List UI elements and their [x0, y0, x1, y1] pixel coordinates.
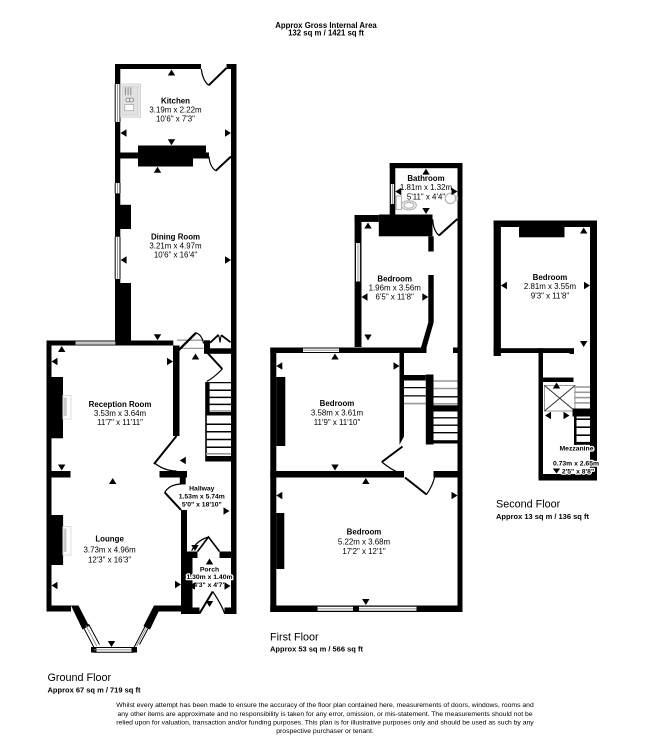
svg-text:relied upon for valuation, tra: relied upon for valuation, transaction a… — [116, 719, 534, 726]
svg-text:10'6" x 16'4": 10'6" x 16'4" — [154, 251, 197, 260]
svg-text:Second Floor: Second Floor — [496, 499, 561, 511]
svg-text:3.73m x 4.96m: 3.73m x 4.96m — [83, 546, 136, 555]
svg-text:Whilst every attempt has been: Whilst every attempt has been made to en… — [116, 702, 534, 709]
svg-text:17'2" x 12'1": 17'2" x 12'1" — [342, 547, 385, 556]
svg-text:Dining Room: Dining Room — [151, 232, 200, 241]
svg-text:4'3" x 4'7": 4'3" x 4'7" — [193, 582, 225, 589]
svg-text:Reception Room: Reception Room — [89, 400, 152, 409]
svg-text:10'6" x 7'3": 10'6" x 7'3" — [156, 115, 195, 124]
svg-text:1.30m x 1.40m: 1.30m x 1.40m — [186, 574, 232, 581]
svg-text:2.81m x 3.55m: 2.81m x 3.55m — [524, 282, 577, 291]
svg-text:Bedroom: Bedroom — [347, 527, 382, 536]
svg-text:1.96m x 3.56m: 1.96m x 3.56m — [369, 284, 422, 293]
svg-text:9'3" x 11'8": 9'3" x 11'8" — [531, 291, 569, 300]
svg-text:Bedroom: Bedroom — [377, 274, 412, 283]
svg-text:Porch: Porch — [200, 567, 219, 574]
svg-text:Approx 67 sq m / 719 sq ft: Approx 67 sq m / 719 sq ft — [48, 685, 141, 694]
svg-text:5'0" x 18'10": 5'0" x 18'10" — [182, 501, 222, 508]
svg-text:3.21m x 4.97m: 3.21m x 4.97m — [149, 241, 202, 250]
svg-text:12'3" x 16'3": 12'3" x 16'3" — [88, 556, 131, 565]
svg-text:Bedroom: Bedroom — [320, 399, 355, 408]
svg-text:1.81m x 1.32m: 1.81m x 1.32m — [400, 183, 453, 192]
svg-text:3.19m x 2.22m: 3.19m x 2.22m — [149, 106, 202, 115]
svg-text:5'11" x 4'4": 5'11" x 4'4" — [407, 192, 445, 201]
svg-text:Lounge: Lounge — [95, 534, 124, 543]
svg-text:132 sq m / 1421 sq ft: 132 sq m / 1421 sq ft — [288, 29, 364, 38]
svg-text:Approx 13 sq m / 136 sq ft: Approx 13 sq m / 136 sq ft — [496, 512, 589, 521]
svg-text:1.53m x 5.74m: 1.53m x 5.74m — [179, 493, 225, 500]
svg-text:Mezzanine: Mezzanine — [560, 446, 594, 453]
svg-text:6'5" x 11'8": 6'5" x 11'8" — [376, 293, 414, 302]
svg-text:5.22m x 3.68m: 5.22m x 3.68m — [338, 537, 391, 546]
svg-text:Kitchen: Kitchen — [161, 96, 190, 105]
svg-text:3.58m x 3.61m: 3.58m x 3.61m — [311, 409, 364, 418]
svg-text:Bathroom: Bathroom — [407, 174, 444, 183]
svg-text:3.53m x 3.64m: 3.53m x 3.64m — [94, 409, 147, 418]
svg-text:11'7" x 11'11": 11'7" x 11'11" — [97, 418, 143, 427]
svg-text:prospective purchaser or tenan: prospective purchaser or tenant. — [276, 728, 374, 735]
svg-text:First Floor: First Floor — [270, 632, 319, 644]
svg-text:Hallway: Hallway — [189, 485, 215, 492]
svg-text:Approx 53 sq m / 566 sq ft: Approx 53 sq m / 566 sq ft — [270, 645, 363, 654]
svg-text:any other items are approximat: any other items are approximate and no r… — [117, 711, 532, 718]
svg-text:2'5" x 8'8": 2'5" x 8'8" — [562, 469, 594, 476]
svg-text:Bedroom: Bedroom — [533, 273, 568, 282]
svg-text:11'9" x 11'10": 11'9" x 11'10" — [314, 418, 361, 427]
svg-text:Ground Floor: Ground Floor — [48, 672, 112, 684]
svg-text:0.73m x 2.65m: 0.73m x 2.65m — [553, 461, 599, 468]
